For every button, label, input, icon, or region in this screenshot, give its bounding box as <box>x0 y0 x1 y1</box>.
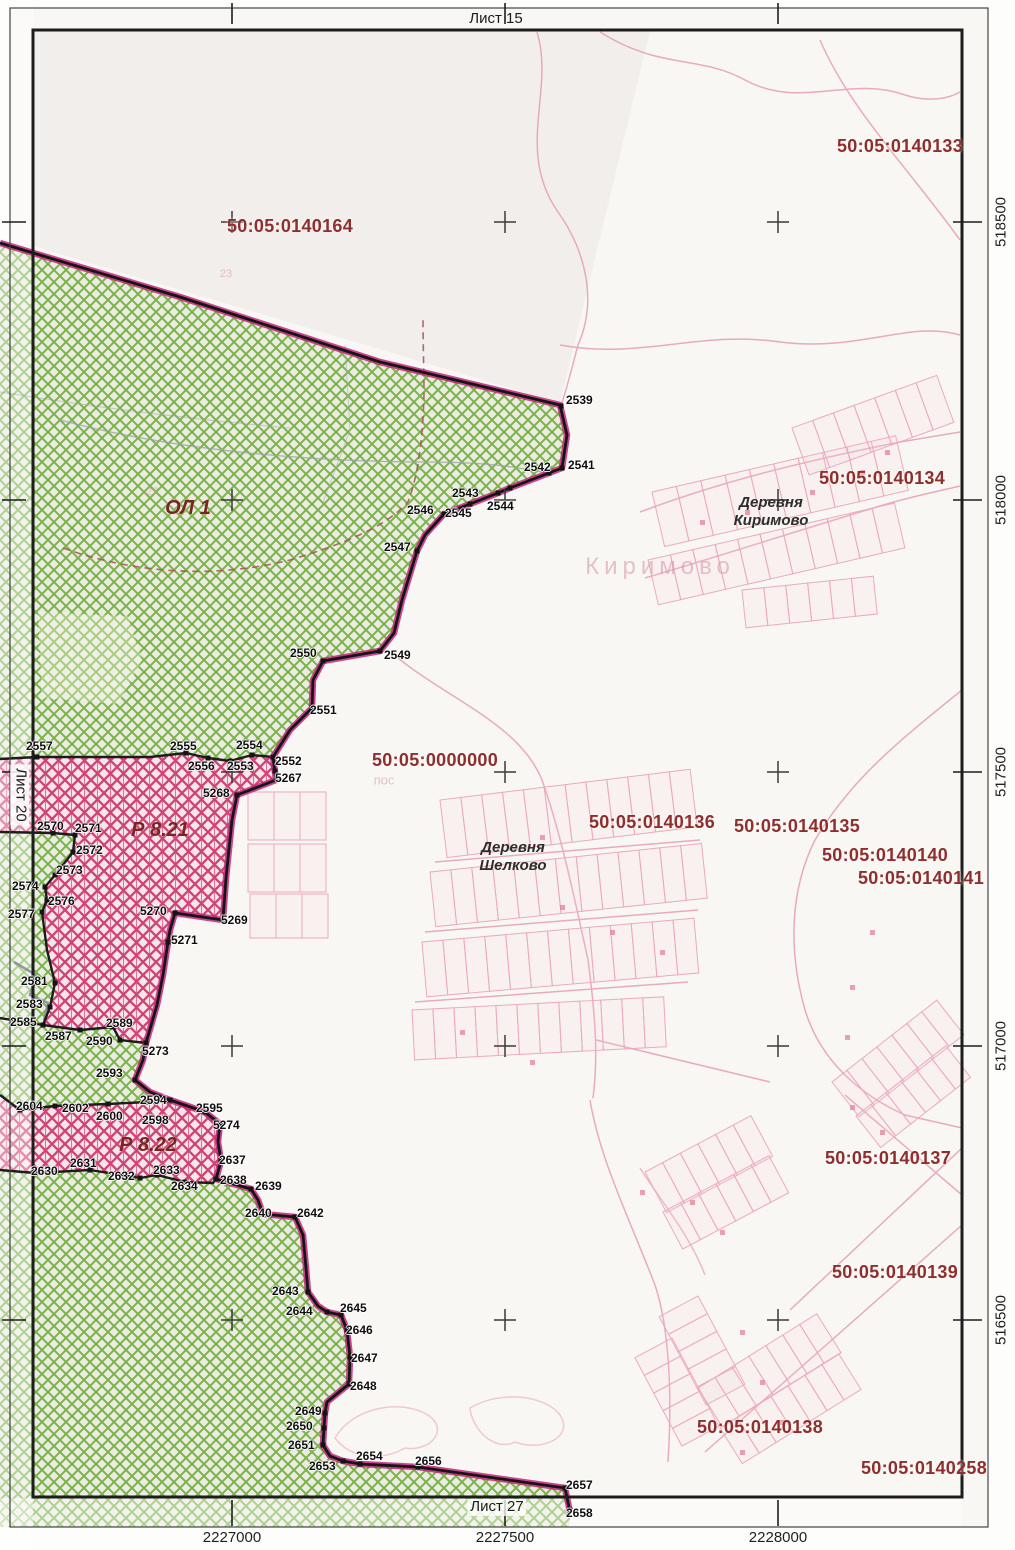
map-watermark-text: пос <box>374 773 395 788</box>
grid-northing-label: 516500 <box>994 1295 1009 1345</box>
point-label-2551: 2551 <box>310 704 337 717</box>
point-label-2630: 2630 <box>31 1165 58 1178</box>
point-label-2650: 2650 <box>286 1420 313 1433</box>
grid-easting-label: 2228000 <box>749 1530 807 1545</box>
cadastral-quarter-label: 50:05:0000000 <box>372 751 498 769</box>
point-label-2589: 2589 <box>106 1017 133 1030</box>
point-label-2594: 2594 <box>140 1094 167 1107</box>
point-label-2574: 2574 <box>12 880 39 893</box>
point-label-2604: 2604 <box>16 1100 43 1113</box>
point-label-2542: 2542 <box>524 461 551 474</box>
land-use-region-label: Р 8.22 <box>119 1135 177 1155</box>
map-watermark-text: 27 <box>146 486 158 498</box>
point-label-2581: 2581 <box>21 975 48 988</box>
map-labels-layer: Лист 15 Лист 20 Лист 27 2539254125422543… <box>0 0 1015 1550</box>
point-label-5267: 5267 <box>275 772 302 785</box>
point-label-2557: 2557 <box>26 740 53 753</box>
grid-northing-label: 518500 <box>994 197 1009 247</box>
point-label-2539: 2539 <box>566 394 593 407</box>
point-label-2572: 2572 <box>76 844 103 857</box>
grid-northing-label: 517500 <box>994 747 1009 797</box>
point-label-2653: 2653 <box>309 1460 336 1473</box>
point-label-2645: 2645 <box>340 1302 367 1315</box>
point-label-2598: 2598 <box>142 1114 169 1127</box>
point-label-2577: 2577 <box>8 908 35 921</box>
map-watermark-text: 23 <box>220 268 232 280</box>
land-use-region-label: Р 8.21 <box>131 820 189 840</box>
point-label-5270: 5270 <box>140 905 167 918</box>
point-label-2571: 2571 <box>75 822 102 835</box>
point-label-2583: 2583 <box>16 998 43 1011</box>
point-label-2549: 2549 <box>384 649 411 662</box>
grid-northing-label: 517000 <box>994 1021 1009 1071</box>
point-label-2556: 2556 <box>188 760 215 773</box>
point-label-2547: 2547 <box>384 541 411 554</box>
point-label-5268: 5268 <box>203 787 230 800</box>
point-label-2657: 2657 <box>566 1479 593 1492</box>
village-name-label: Деревня Шелково <box>479 839 546 875</box>
point-label-5269: 5269 <box>221 914 248 927</box>
cadastral-quarter-label: 50:05:0140140 <box>822 846 948 864</box>
cadastral-quarter-label: 50:05:0140134 <box>819 469 945 487</box>
point-label-2643: 2643 <box>272 1285 299 1298</box>
cadastral-quarter-label: 50:05:0140137 <box>825 1149 951 1167</box>
point-label-2550: 2550 <box>290 647 317 660</box>
cadastral-quarter-label: 50:05:0140138 <box>697 1418 823 1436</box>
point-label-2590: 2590 <box>86 1035 113 1048</box>
point-label-2634: 2634 <box>171 1180 198 1193</box>
point-label-2585: 2585 <box>10 1016 37 1029</box>
point-label-5273: 5273 <box>142 1045 169 1058</box>
point-label-2642: 2642 <box>297 1207 324 1220</box>
point-label-2576: 2576 <box>48 895 75 908</box>
point-label-2638: 2638 <box>220 1174 247 1187</box>
point-label-2648: 2648 <box>350 1380 377 1393</box>
point-label-2647: 2647 <box>351 1352 378 1365</box>
point-label-2651: 2651 <box>288 1439 315 1452</box>
point-label-2633: 2633 <box>153 1164 180 1177</box>
point-label-2593: 2593 <box>96 1067 123 1080</box>
point-label-2637: 2637 <box>219 1154 246 1167</box>
land-use-region-label: ОЛ 1 <box>165 498 211 518</box>
point-label-2654: 2654 <box>356 1450 383 1463</box>
point-label-2541: 2541 <box>568 459 595 472</box>
point-label-2600: 2600 <box>96 1110 123 1123</box>
point-label-2632: 2632 <box>108 1170 135 1183</box>
point-label-2649: 2649 <box>295 1405 322 1418</box>
cadastral-quarter-label: 50:05:0140139 <box>832 1263 958 1281</box>
cadastral-quarter-label: 50:05:0140136 <box>589 813 715 831</box>
point-label-2602: 2602 <box>62 1102 89 1115</box>
point-label-2544: 2544 <box>487 500 514 513</box>
point-label-2545: 2545 <box>445 507 472 520</box>
grid-easting-label: 2227500 <box>476 1530 534 1545</box>
point-label-5274: 5274 <box>213 1119 240 1132</box>
cadastral-quarter-label: 50:05:0140133 <box>837 137 963 155</box>
point-label-2546: 2546 <box>407 504 434 517</box>
point-label-2639: 2639 <box>255 1180 282 1193</box>
cadastral-quarter-label: 50:05:0140164 <box>227 217 353 235</box>
point-label-2656: 2656 <box>415 1455 442 1468</box>
cadastral-quarter-label: 50:05:0140141 <box>858 869 984 887</box>
point-label-2644: 2644 <box>286 1305 313 1318</box>
point-label-2573: 2573 <box>56 864 83 877</box>
map-watermark-text: Киримово <box>585 553 735 581</box>
grid-easting-label: 2227000 <box>203 1530 261 1545</box>
cadastral-quarter-label: 50:05:0140258 <box>861 1459 987 1477</box>
adjacent-sheet-label-bottom: Лист 27 <box>467 1499 526 1516</box>
point-label-2552: 2552 <box>275 755 302 768</box>
cadastral-quarter-label: 50:05:0140135 <box>734 817 860 835</box>
point-label-2554: 2554 <box>236 739 263 752</box>
adjacent-sheet-label-left: Лист 20 <box>11 764 30 825</box>
point-label-2553: 2553 <box>227 760 254 773</box>
village-name-label: Деревня Киримово <box>734 494 809 530</box>
point-label-2570: 2570 <box>37 820 64 833</box>
point-label-5271: 5271 <box>171 934 198 947</box>
point-label-2555: 2555 <box>170 740 197 753</box>
point-label-2658: 2658 <box>566 1507 593 1520</box>
grid-northing-label: 518000 <box>994 475 1009 525</box>
cadastral-map-sheet: Лист 15 Лист 20 Лист 27 2539254125422543… <box>0 0 1015 1550</box>
point-label-2640: 2640 <box>245 1207 272 1220</box>
adjacent-sheet-label-top: Лист 15 <box>469 11 522 28</box>
point-label-2543: 2543 <box>452 487 479 500</box>
point-label-2631: 2631 <box>70 1157 97 1170</box>
point-label-2646: 2646 <box>346 1324 373 1337</box>
point-label-2587: 2587 <box>45 1030 72 1043</box>
point-label-2595: 2595 <box>196 1102 223 1115</box>
